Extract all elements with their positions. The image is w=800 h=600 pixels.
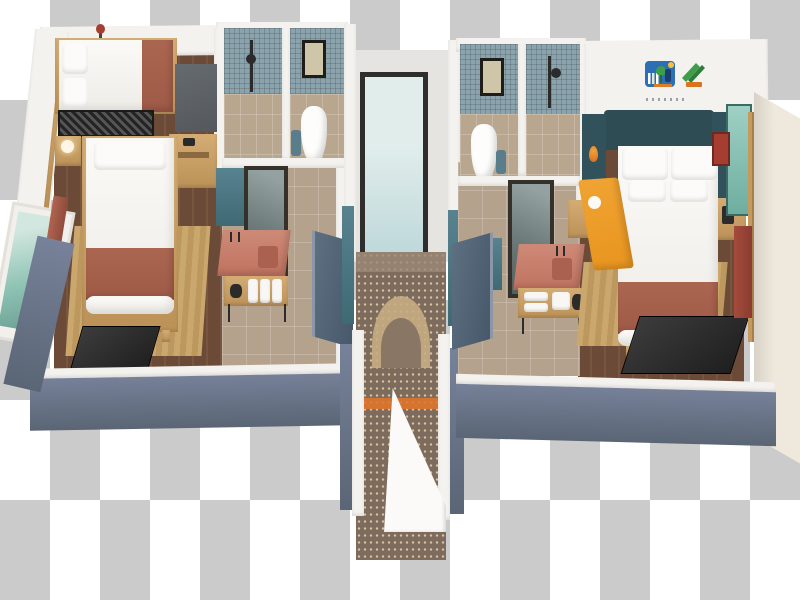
vanity-leg xyxy=(284,304,286,322)
corridor-lower-face-left xyxy=(340,344,352,510)
bed-pillow xyxy=(671,148,717,180)
bed-pillow-small xyxy=(628,180,666,202)
shower-rail xyxy=(548,56,551,108)
left-wall-tv xyxy=(69,326,160,372)
shower-wall-tiles xyxy=(526,44,580,114)
telephone xyxy=(183,138,195,146)
bed-leg xyxy=(162,330,170,342)
red-curtain xyxy=(734,226,752,318)
single-bed-pillow xyxy=(94,142,166,170)
right-front-wall xyxy=(456,382,776,446)
shower-lower-tiles xyxy=(224,94,282,160)
double-bed-pillow xyxy=(62,78,88,108)
towel-roll xyxy=(524,303,548,312)
towel-roll xyxy=(272,279,282,303)
left-sink xyxy=(258,246,278,268)
toilet-artwork xyxy=(302,40,326,78)
bed-pillow-small xyxy=(670,180,708,202)
corridor-end-window xyxy=(365,77,423,253)
corridor-lower-wall-right xyxy=(438,334,450,520)
toilet-artwork xyxy=(480,58,504,96)
chair-cushion xyxy=(588,196,601,209)
towel-roll xyxy=(248,279,258,303)
logo-tagline-marks xyxy=(646,98,686,101)
folded-bunk-frame xyxy=(58,110,154,137)
folded-towels xyxy=(552,292,570,310)
faucet xyxy=(556,246,558,256)
towel-roll xyxy=(260,279,270,303)
floorplan-render xyxy=(0,0,800,600)
luggage-bench xyxy=(175,64,217,132)
right-sink xyxy=(552,258,572,280)
stall-divider xyxy=(518,44,526,176)
faucet xyxy=(238,232,240,242)
shower-rail xyxy=(250,40,253,92)
brand-logo xyxy=(644,58,710,98)
shower-head xyxy=(246,54,256,64)
vanity-leg xyxy=(522,318,524,334)
corridor-lower-wall-left xyxy=(352,330,364,516)
faucet xyxy=(230,232,232,242)
terracotta-blanket xyxy=(86,248,174,300)
vanity-teal-panel xyxy=(216,168,244,226)
faucet xyxy=(563,246,565,256)
carpet-band xyxy=(356,252,446,272)
vanity-leg xyxy=(228,304,230,322)
shower-lower-tiles xyxy=(526,114,580,176)
right-wall-tv xyxy=(621,316,750,374)
right-waste-bin xyxy=(496,150,506,174)
brand-logo-graphic xyxy=(644,58,710,98)
right-vanity-counter xyxy=(513,244,585,290)
towel-roll xyxy=(524,292,548,301)
shower-head xyxy=(551,68,561,78)
orange-wall-sconce xyxy=(589,146,598,162)
red-wall-art xyxy=(712,132,730,166)
kettle xyxy=(230,284,242,298)
bed-pillow xyxy=(622,148,668,180)
stall-divider xyxy=(282,28,290,160)
right-entry-door xyxy=(452,232,493,350)
red-wall-sconce xyxy=(96,24,105,34)
headboard xyxy=(604,110,714,150)
left-waste-bin xyxy=(291,130,301,156)
terracotta-runner xyxy=(142,40,173,112)
single-bed-foot-roll xyxy=(86,296,174,314)
left-front-wall xyxy=(30,371,348,431)
reading-lamp xyxy=(61,140,74,153)
door-jamb-left xyxy=(342,206,354,324)
desk-drawer xyxy=(175,152,209,158)
left-vanity-counter xyxy=(217,230,291,276)
double-bed-pillow xyxy=(62,44,88,74)
